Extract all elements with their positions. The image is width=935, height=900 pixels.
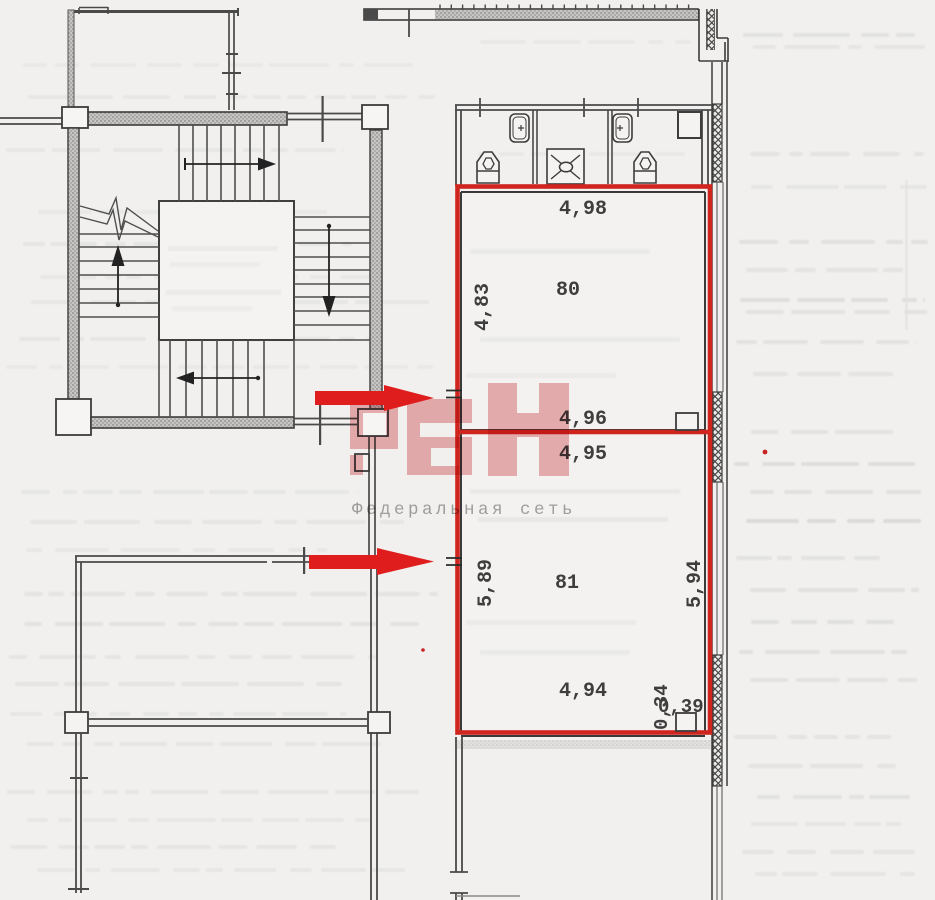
- svg-text:0,39: 0,39: [658, 696, 704, 718]
- svg-text:4,83: 4,83: [472, 283, 495, 331]
- svg-text:4,98: 4,98: [559, 198, 607, 221]
- svg-text:81: 81: [555, 572, 579, 595]
- svg-text:80: 80: [556, 279, 580, 302]
- svg-text:5,94: 5,94: [684, 560, 707, 608]
- svg-text:4,94: 4,94: [559, 680, 607, 703]
- svg-text:5,89: 5,89: [475, 559, 498, 607]
- svg-text:Федеральная сеть: Федеральная сеть: [352, 500, 577, 520]
